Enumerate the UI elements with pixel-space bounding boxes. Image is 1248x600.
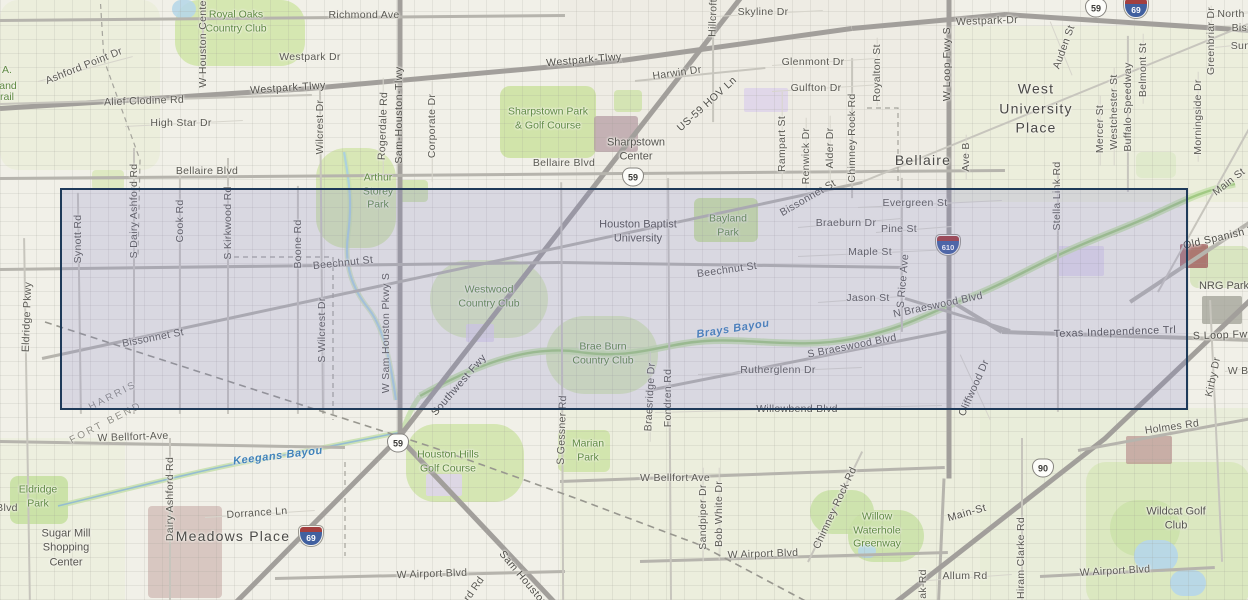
map-canvas[interactable]: Royal Oaks Country ClubRichmond AveSkyli… <box>0 0 1248 600</box>
map-label: West University Place <box>988 80 1084 139</box>
map-label: Mercer St <box>1094 105 1106 153</box>
map-label: Hillcroft <box>706 0 719 37</box>
map-label: Chimney Rock Rd <box>846 93 858 182</box>
map-label: Greenbriar Dr <box>1205 7 1217 75</box>
map-label: Willow Waterhole Greenway <box>840 511 914 552</box>
map-label: Meadows Place <box>176 527 290 547</box>
map-label: North <box>1217 8 1244 20</box>
map-label: Westpark Dr <box>279 51 340 63</box>
map-label: Sunset <box>1231 40 1248 52</box>
map-label: Buffalo Speedway <box>1122 62 1134 151</box>
map-label: W Houston Center <box>197 0 209 88</box>
map-label: NRG Park <box>1199 279 1248 293</box>
map-label: Wildcat Golf Club <box>1145 505 1207 534</box>
map-label: Renwick Dr <box>800 128 812 185</box>
map-label: Skyline Dr <box>738 6 789 18</box>
map-label: Sam-Houston-Tlwy <box>393 66 405 163</box>
map-label: A. <box>2 64 12 78</box>
map-label: Royal Oaks Country Club <box>205 8 267 35</box>
map-label: W Airport Blvd <box>396 567 467 581</box>
map-label: Bellaire <box>895 151 951 171</box>
map-label: Richmond Ave <box>328 9 399 21</box>
map-label: Eldridge Park <box>13 483 63 510</box>
map-label: Morningside Dr <box>1192 79 1204 154</box>
map-label: W Bellfort <box>1228 365 1248 377</box>
map-label: Dairy Ashford Rd <box>164 457 176 541</box>
map-label: High Star Dr <box>150 117 211 129</box>
map-label: Sugar Mill Shopping Center <box>36 527 96 570</box>
map-label: Allum Rd <box>943 570 988 582</box>
map-label: Westpark-Dr <box>956 14 1018 28</box>
map-label: Hiram Clarke Rd <box>1015 517 1027 599</box>
map-label: Belmont St <box>1137 43 1149 97</box>
map-label: Blvd <box>0 502 18 514</box>
map-label: Royalton St <box>871 44 883 102</box>
map-label: Alder Dr <box>824 128 836 169</box>
map-label: Glenmont Dr <box>782 56 845 68</box>
map-label: Sharpstown Park & Golf Course <box>507 105 589 132</box>
map-label: ak-Rd <box>917 569 929 599</box>
map-label: Eldridge Pkwy <box>20 282 34 353</box>
map-label: Ave B <box>960 142 972 171</box>
map-label: Marian Park <box>566 437 610 464</box>
map-label: Houston Hills Golf Course <box>416 448 480 475</box>
map-label: Wilcrest Dr <box>314 100 326 155</box>
map-label: Rampart St <box>776 116 788 172</box>
map-label: Westchester St <box>1108 74 1120 149</box>
map-label: W Loop Fwy S <box>941 27 953 101</box>
map-label: W Airport Blvd <box>727 547 798 561</box>
map-label: W Bellfort-Ave <box>97 430 168 444</box>
map-label: S Loop Fwy W <box>1193 328 1248 343</box>
map-label: Bissonnet <box>1232 22 1248 34</box>
map-label: Bellaire Blvd <box>176 165 238 177</box>
map-label: Bellaire Blvd <box>533 157 595 169</box>
map-label: Sharpstown Center <box>604 136 668 165</box>
map-label: rail <box>0 91 14 105</box>
map-label: Gulfton Dr <box>791 82 842 94</box>
map-label: Rogerdale Rd <box>376 92 390 161</box>
map-label: W Bellfort Ave <box>640 472 710 484</box>
map-label: Sandpiper Dr <box>697 484 709 549</box>
map-label: Corporate Dr <box>426 94 438 158</box>
map-label: Bob White Dr <box>713 481 725 547</box>
selection-extent-graphic[interactable] <box>60 188 1188 410</box>
